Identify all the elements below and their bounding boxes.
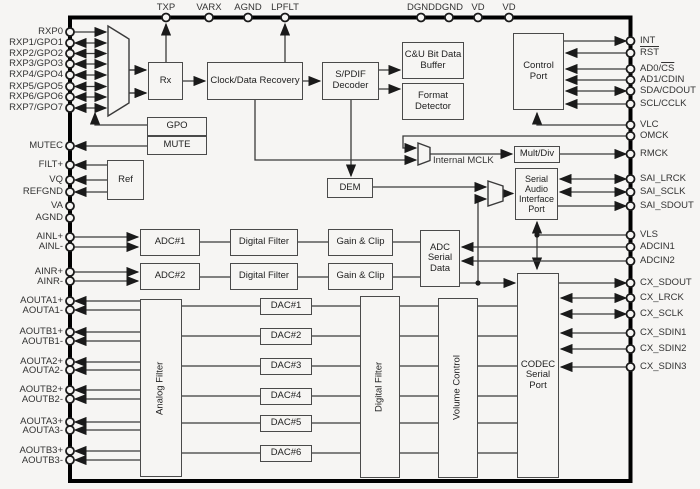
pin-ad0-cs: AD0/CS — [640, 64, 674, 74]
pin-scl-cclk: SCL/CCLK — [640, 99, 686, 109]
block-adc2-label: ADC#2 — [155, 271, 186, 282]
pin-aouta3-minus: AOUTA3- — [0, 426, 63, 436]
internal-mclk-label: Internal MCLK — [433, 156, 494, 166]
block-ref: Ref — [107, 160, 144, 200]
block-control-port-label: Control Port — [515, 61, 562, 82]
block-mute-label: MUTE — [164, 140, 191, 151]
block-gain-clip-1: Gain & Clip — [328, 229, 393, 256]
pin-vlc: VLC — [640, 120, 658, 130]
pin-ainl-minus: AINL- — [0, 242, 63, 252]
block-codec-serial-port-label: CODEC Serial Port — [519, 360, 557, 392]
pin-refgnd: REFGND — [0, 187, 63, 197]
pin-int: INT — [640, 36, 655, 46]
pin-aoutb3-minus: AOUTB3- — [0, 456, 63, 466]
block-dac3: DAC#3 — [260, 358, 312, 375]
pin-cx-sdout: CX_SDOUT — [640, 278, 692, 288]
pin-rxp4-gpo4: RXP4/GPO4 — [0, 70, 63, 80]
pin-cx-lrck: CX_LRCK — [640, 293, 684, 303]
pin-omck: OMCK — [640, 131, 669, 141]
pin-cx-sdin1: CX_SDIN1 — [640, 328, 686, 338]
pin-ad1-cdin: AD1/CDIN — [640, 75, 684, 85]
pin-aoutb1-minus: AOUTB1- — [0, 337, 63, 347]
pin-vd-2: VD — [479, 3, 539, 13]
block-dac2-label: DAC#2 — [271, 331, 302, 342]
pin-aouta2-minus: AOUTA2- — [0, 366, 63, 376]
block-dac4-label: DAC#4 — [271, 391, 302, 402]
pin-rxp3-gpo3: RXP3/GPO3 — [0, 59, 63, 69]
block-adc2: ADC#2 — [140, 263, 200, 290]
block-adc-serial-data-label: ADC Serial Data — [422, 243, 458, 275]
sai-source-mux — [488, 181, 503, 206]
pin-cx-sdin2: CX_SDIN2 — [640, 344, 686, 354]
block-volume-control-label: Volume Control — [453, 356, 464, 421]
block-serial-audio-interface-port: Serial Audio Interface Port — [515, 168, 558, 220]
block-analog-filter: Analog Filter — [140, 299, 182, 477]
pin-adcin1: ADCIN1 — [640, 242, 675, 252]
block-gain-clip-1-label: Gain & Clip — [336, 237, 384, 248]
block-clock-data-recovery-label: Clock/Data Recovery — [210, 76, 299, 87]
block-dac2: DAC#2 — [260, 328, 312, 345]
block-gain-clip-2-label: Gain & Clip — [336, 271, 384, 282]
block-gpo: GPO — [147, 117, 207, 136]
block-digital-filter-adc2-label: Digital Filter — [239, 271, 289, 282]
pin-rmck: RMCK — [640, 149, 668, 159]
block-rx-label: Rx — [160, 76, 172, 87]
pin-filt-plus: FILT+ — [0, 160, 63, 170]
pin-cx-sdin3: CX_SDIN3 — [640, 362, 686, 372]
block-dac1-label: DAC#1 — [271, 301, 302, 312]
pin-adcin2: ADCIN2 — [640, 256, 675, 266]
pin-sai-sclk: SAI_SCLK — [640, 187, 685, 197]
block-dac5-label: DAC#5 — [271, 418, 302, 429]
pin-rxp0: RXP0 — [0, 27, 63, 37]
mclk-mux — [418, 143, 430, 165]
pin-rxp6-gpo6: RXP6/GPO6 — [0, 92, 63, 102]
block-mute: MUTE — [147, 136, 207, 155]
block-dem-label: DEM — [339, 183, 360, 194]
pin-ad0-text: AD0/ — [640, 63, 661, 74]
pin-mutec: MUTEC — [0, 141, 63, 151]
pin-agnd-left: AGND — [0, 213, 63, 223]
block-spdif-decoder-label: S/PDIF Decoder — [324, 70, 377, 91]
block-rx: Rx — [148, 62, 183, 100]
pin-rxp7-gpo7: RXP7/GPO7 — [0, 103, 63, 113]
pin-sai-lrck: SAI_LRCK — [640, 174, 686, 184]
block-sai-label: Serial Audio Interface Port — [517, 174, 556, 214]
block-diagram: Rx Clock/Data Recovery S/PDIF Decoder C&… — [0, 0, 700, 489]
block-dac6: DAC#6 — [260, 445, 312, 462]
block-mult-div-label: Mult/Div — [520, 149, 554, 160]
rxp-mux — [108, 26, 129, 116]
block-clock-data-recovery: Clock/Data Recovery — [207, 62, 303, 100]
block-digital-filter-dac-label: Digital Filter — [375, 362, 386, 412]
pin-lpflt: LPFLT — [255, 3, 315, 13]
pin-cx-sclk: CX_SCLK — [640, 309, 683, 319]
block-mult-div: Mult/Div — [514, 146, 560, 163]
block-adc1: ADC#1 — [140, 229, 200, 256]
block-digital-filter-adc2: Digital Filter — [230, 263, 298, 290]
block-format-detector: Format Detector — [402, 83, 464, 120]
block-adc1-label: ADC#1 — [155, 237, 186, 248]
block-codec-serial-port: CODEC Serial Port — [517, 273, 559, 478]
block-gain-clip-2: Gain & Clip — [328, 263, 393, 290]
block-volume-control: Volume Control — [438, 298, 478, 478]
block-digital-filter-dac: Digital Filter — [360, 296, 400, 478]
block-dac6-label: DAC#6 — [271, 448, 302, 459]
block-gpo-label: GPO — [166, 121, 187, 132]
block-control-port: Control Port — [513, 33, 564, 110]
block-dem: DEM — [327, 178, 373, 198]
pin-rst-text: RST — [640, 47, 659, 58]
block-dac1: DAC#1 — [260, 298, 312, 315]
block-digital-filter-adc1-label: Digital Filter — [239, 237, 289, 248]
block-cu-bit-data-buffer: C&U Bit Data Buffer — [402, 42, 464, 79]
pin-ainr-minus: AINR- — [0, 277, 63, 287]
block-analog-filter-label: Analog Filter — [156, 361, 167, 414]
pin-vls: VLS — [640, 230, 658, 240]
pin-rxp1-gpo1: RXP1/GPO1 — [0, 38, 63, 48]
pin-va: VA — [0, 201, 63, 211]
pin-sda-cdout: SDA/CDOUT — [640, 86, 696, 96]
pin-rst: RST — [640, 48, 659, 58]
pin-aouta1-minus: AOUTA1- — [0, 306, 63, 316]
pin-aoutb2-minus: AOUTB2- — [0, 395, 63, 405]
pin-sai-sdout: SAI_SDOUT — [640, 201, 694, 211]
block-dac4: DAC#4 — [260, 388, 312, 405]
pin-vq: VQ — [0, 175, 63, 185]
block-ref-label: Ref — [118, 175, 133, 186]
block-digital-filter-adc1: Digital Filter — [230, 229, 298, 256]
block-format-detector-label: Format Detector — [404, 91, 462, 112]
pin-cs-text: CS — [661, 63, 674, 74]
block-adc-serial-data: ADC Serial Data — [420, 230, 460, 287]
block-dac3-label: DAC#3 — [271, 361, 302, 372]
block-cu-bit-data-buffer-label: C&U Bit Data Buffer — [404, 50, 462, 71]
block-dac5: DAC#5 — [260, 415, 312, 432]
block-spdif-decoder: S/PDIF Decoder — [322, 62, 379, 100]
